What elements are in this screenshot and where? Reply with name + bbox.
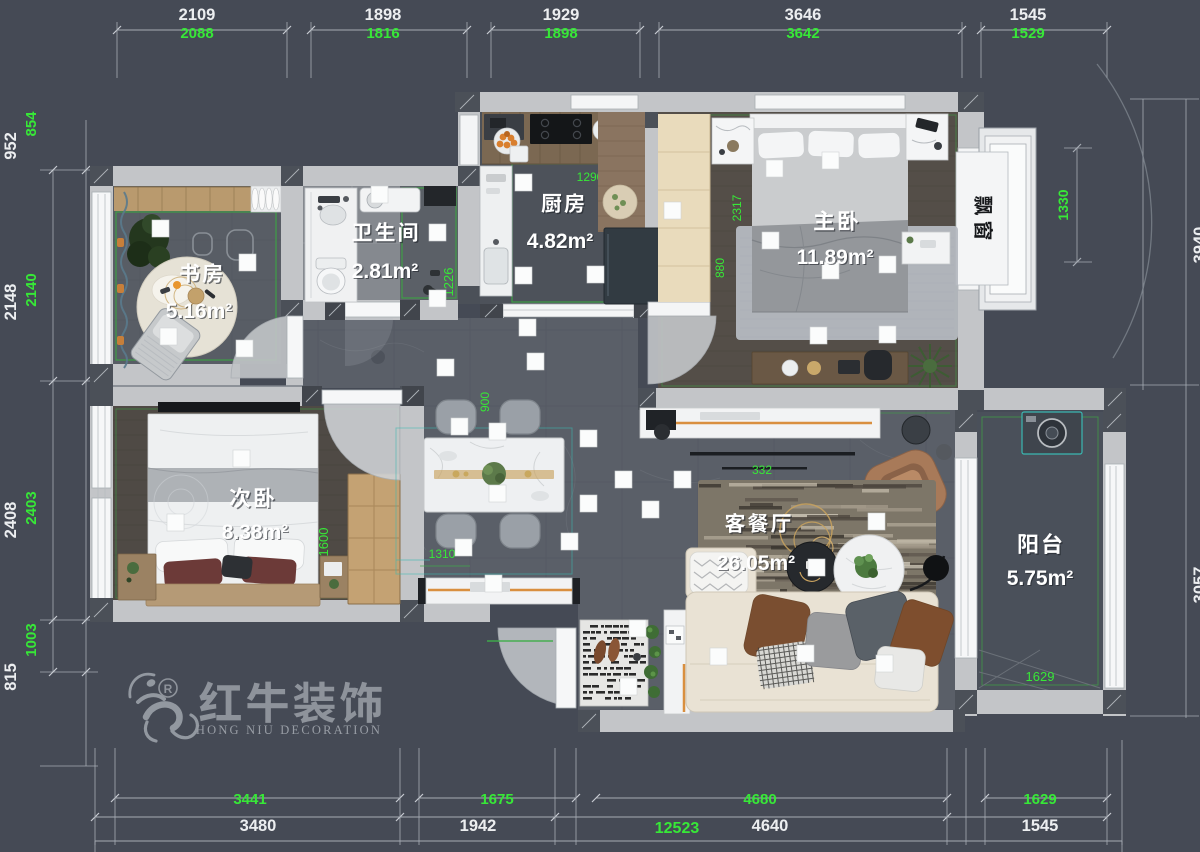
svg-text:26.05m²: 26.05m² [717,552,795,575]
svg-text:3057: 3057 [1191,567,1200,604]
svg-text:4680: 4680 [743,791,776,808]
svg-text:1929: 1929 [543,6,580,24]
svg-text:854: 854 [23,111,40,137]
svg-text:HONG NIU DECORATION: HONG NIU DECORATION [196,723,382,737]
svg-text:952: 952 [2,132,20,160]
svg-text:1310: 1310 [429,547,456,561]
svg-text:2148: 2148 [2,284,20,321]
svg-text:1330: 1330 [1055,189,1071,220]
svg-text:2317: 2317 [730,194,744,221]
svg-text:2403: 2403 [23,491,40,524]
svg-text:R: R [164,682,173,696]
svg-text:1629: 1629 [1026,669,1055,684]
svg-text:1629: 1629 [1023,791,1056,808]
svg-text:815: 815 [2,663,20,691]
svg-text:1942: 1942 [460,817,497,835]
svg-text:5.16m²: 5.16m² [166,300,233,323]
svg-text:4640: 4640 [752,817,789,835]
svg-text:2088: 2088 [180,25,213,42]
svg-text:12523: 12523 [655,820,700,837]
svg-text:1816: 1816 [366,25,399,42]
svg-text:3441: 3441 [233,791,266,808]
svg-text:8.38m²: 8.38m² [222,521,289,544]
svg-text:1545: 1545 [1022,817,1059,835]
svg-text:1600: 1600 [316,528,331,557]
svg-text:2140: 2140 [23,273,40,306]
svg-text:2.81m²: 2.81m² [352,260,419,283]
svg-text:2109: 2109 [179,6,216,24]
svg-text:3480: 3480 [240,817,277,835]
svg-text:900: 900 [478,392,492,412]
svg-text:1675: 1675 [480,791,513,808]
svg-text:1003: 1003 [23,623,40,656]
svg-text:3646: 3646 [785,6,822,24]
svg-text:1545: 1545 [1010,6,1047,24]
svg-text:3642: 3642 [786,25,819,42]
svg-text:880: 880 [713,258,727,278]
svg-text:1529: 1529 [1011,25,1044,42]
svg-text:3940: 3940 [1191,227,1200,264]
svg-text:5.75m²: 5.75m² [1007,567,1074,590]
svg-text:332: 332 [752,463,772,477]
svg-text:1898: 1898 [365,6,402,24]
svg-text:2408: 2408 [2,502,20,539]
svg-text:11.89m²: 11.89m² [796,246,873,269]
svg-text:4.82m²: 4.82m² [527,230,594,253]
svg-text:1898: 1898 [544,25,577,42]
